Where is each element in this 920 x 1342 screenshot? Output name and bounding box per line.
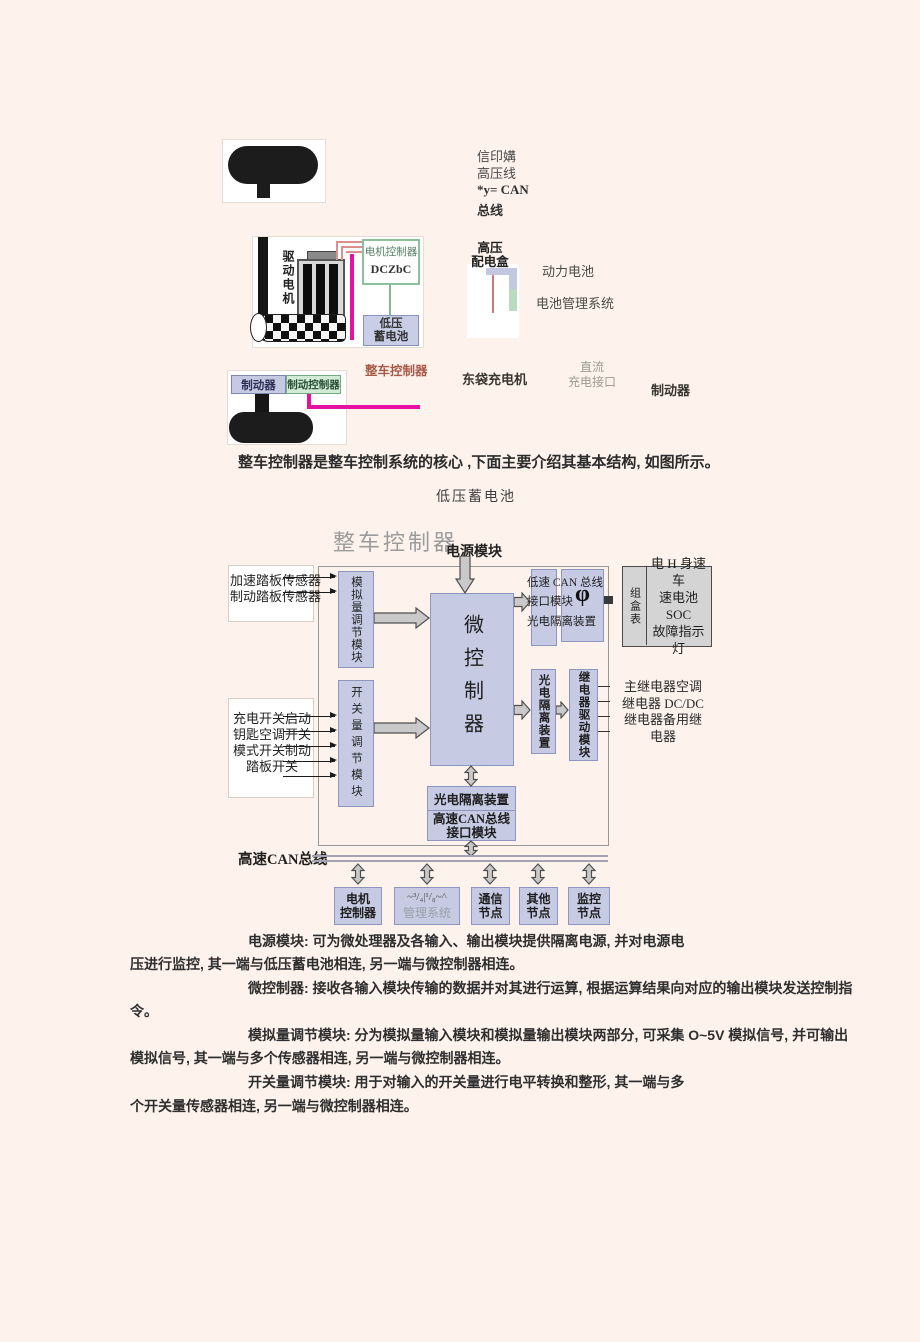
varrow-node <box>582 863 596 885</box>
lowcan-text3: 光电隔离装置 <box>527 613 596 629</box>
driveshaft <box>256 314 346 342</box>
node-comm: 通信 节点 <box>471 887 510 925</box>
relay-tick <box>598 686 610 687</box>
motor-slat <box>303 264 312 314</box>
tire-bottom <box>229 412 313 443</box>
axle-stub-top <box>257 183 270 198</box>
node2-label: 管理系统 <box>395 904 459 921</box>
para1-line1: 电源模块: 可为微处理器及各输入、输出模块提供隔离电源, 并对电源电 <box>248 931 684 949</box>
charger-label: 东袋充电机 <box>462 369 527 388</box>
para3-line1: 模拟量调节模块: 分为模拟量输入模块和模拟量输出模块两部分, 可采集 O~5V … <box>248 1025 848 1043</box>
motor-body <box>297 259 345 319</box>
can-bus-line <box>312 855 608 862</box>
brake-controller-box: 制动控制器 <box>286 375 341 394</box>
wire-green <box>389 285 391 316</box>
tire-top <box>228 146 318 184</box>
input-arrow <box>283 592 335 593</box>
power-battery-label: 动力电池 <box>542 261 594 280</box>
relay-list: 主继电器空调 继电器 DC/DC 继电器备用继 电器 <box>614 679 712 745</box>
opto-right-box: 光电隔离装置 <box>531 669 556 754</box>
motor-slat <box>329 264 338 314</box>
diagram-title: 整车控制器 <box>333 525 458 557</box>
para4-line2: 个开关量传感器相连, 另一端与微控制器相连。 <box>130 1096 418 1114</box>
hscan-interface-label: 高速CAN总线 接口模块 <box>428 811 515 840</box>
analog-module-box: 模拟量调节模块 <box>338 571 374 668</box>
cluster-vert-label: 组盒表 <box>623 573 646 639</box>
brake-wire-magenta-h <box>307 405 420 409</box>
wire-red <box>341 246 363 248</box>
input-arrow <box>283 776 335 777</box>
varrow-node <box>531 863 545 885</box>
input-arrow <box>283 731 335 732</box>
para1-line2: 压进行监控, 其一端与低压蓄电池相连, 另一端与微控制器相连。 <box>130 954 524 972</box>
document-page: 信印媾 高压线 *y= CAN 总线 驱动电机 电机控制器 DCZbC 低压 蓄… <box>0 0 920 1342</box>
driveshaft-cap <box>250 313 267 342</box>
legend-line3: *y= CAN <box>477 182 529 198</box>
fat-arrow-switch-to-mcu <box>374 717 430 739</box>
hv-bar-green <box>509 289 517 311</box>
fat-arrow-opto-to-relay <box>556 701 569 719</box>
node-monitor: 监控 节点 <box>568 887 610 925</box>
input-arrow <box>283 746 335 747</box>
motor-controller-box: 电机控制器 DCZbC <box>362 239 420 285</box>
dc-port-label: 直流 充电接口 <box>560 360 624 390</box>
input-arrow <box>283 761 335 762</box>
input-arrow <box>283 716 335 717</box>
switch-input-4: 踏板开关 <box>246 756 298 775</box>
bms-label: 电池管理系统 <box>536 293 614 312</box>
motor-slat <box>316 264 325 314</box>
varrow-node <box>483 863 497 885</box>
hv-wire-magenta <box>350 254 354 340</box>
drive-motor-label: 驱动电机 <box>280 250 297 306</box>
fat-arrow-power-down <box>455 556 475 594</box>
node-motor-controller: 电机 控制器 <box>334 887 382 925</box>
vcu-red-label: 整车控制器 <box>365 360 428 379</box>
lowcan-text2: 接口模块 <box>527 593 573 609</box>
para2-line1: 微控制器: 接收各输入模块传输的数据并对其进行运算, 根据运算结果向对应的输出模… <box>248 978 852 996</box>
brake-right-label: 制动器 <box>651 380 690 399</box>
mcu-box: 微控制器 <box>430 593 514 766</box>
fat-arrow-analog-to-mcu <box>374 607 430 629</box>
legend-line4: 总线 <box>477 200 503 219</box>
hv-line-red <box>492 275 494 313</box>
para2-line2: 令。 <box>130 1001 158 1019</box>
opto-bottom-label: 光电隔离装置 <box>428 787 515 811</box>
motor-controller-label: 电机控制器 <box>364 244 418 259</box>
legend-line2: 高压线 <box>477 163 516 182</box>
intro-sentence: 整车控制器是整车控制系统的核心 ,下面主要介绍其基本结构, 如图所示。 <box>238 451 720 472</box>
hscan-box: 光电隔离装置 高速CAN总线 接口模块 <box>427 786 516 841</box>
fat-arrow-mcu-to-opto <box>514 700 531 720</box>
wire-red <box>336 241 338 260</box>
input-arrow <box>283 577 335 578</box>
wire-red <box>346 251 363 253</box>
caption-lv-battery: 低压蓄电池 <box>436 486 516 506</box>
switch-module-box: 开关量调节模块 <box>338 680 374 807</box>
varrow-node <box>420 863 434 885</box>
varrow-mcu-hscan <box>464 765 478 787</box>
cluster-box: 组盒表 电 H 身速车 速电池 SOC 故障指示灯 <box>622 566 712 647</box>
brake-box: 制动器 <box>231 375 286 394</box>
phi-symbol: φ <box>575 581 590 608</box>
wire-red <box>341 246 343 260</box>
lowcan-connector <box>604 596 613 604</box>
relay-module-box: 继电器驱动模块 <box>569 669 598 761</box>
node-management-system: ~³/₄|¹/₈~^ 管理系统 <box>394 887 460 925</box>
relay-tick <box>598 701 610 702</box>
hv-dist-box-label: 高压 配电盒 <box>458 241 522 269</box>
wire-red <box>336 241 363 243</box>
lv-battery-box: 低压 蓄电池 <box>363 315 419 346</box>
node-other: 其他 节点 <box>519 887 558 925</box>
analog-input-2: 制动踏板传感器 <box>230 586 321 605</box>
lowcan-text1: 低速 CAN 总线 <box>527 574 603 590</box>
relay-tick <box>598 716 610 717</box>
varrow-node <box>351 863 365 885</box>
relay-tick <box>598 731 610 732</box>
cluster-text: 电 H 身速车 速电池 SOC 故障指示灯 <box>647 567 710 645</box>
para4-line1: 开关量调节模块: 用于对输入的开关量进行电平转换和整形, 其一端与多 <box>248 1072 684 1090</box>
node2-garbled-text: ~³/₄|¹/₈~^ <box>395 891 459 903</box>
axle-stub-bottom <box>255 394 269 413</box>
motor-controller-sub: DCZbC <box>364 262 418 277</box>
hv-bar-lavender-v <box>509 268 517 289</box>
para3-line2: 模拟信号, 其一端与多个传感器相连, 另一端与微控制器相连。 <box>130 1048 510 1066</box>
